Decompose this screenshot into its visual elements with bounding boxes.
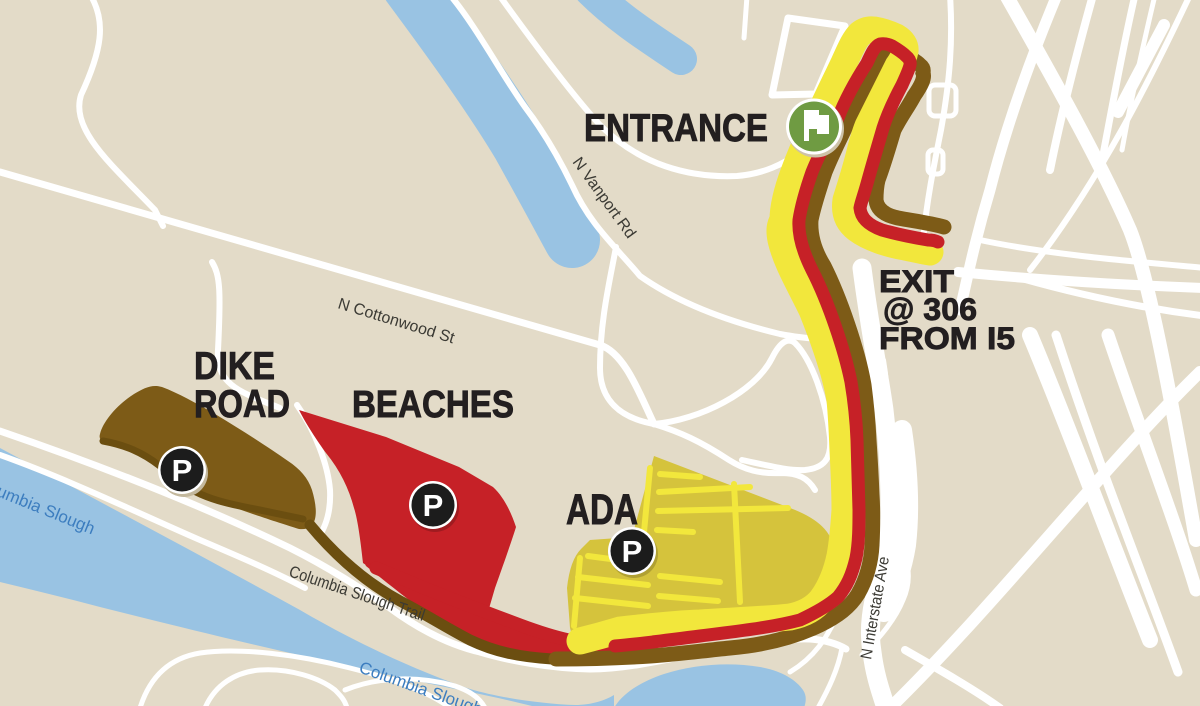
svg-text:P: P — [172, 453, 193, 488]
svg-text:P: P — [622, 534, 643, 569]
svg-text:ROAD: ROAD — [194, 383, 290, 426]
svg-text:P: P — [423, 488, 444, 523]
svg-text:ADA: ADA — [566, 486, 638, 534]
svg-text:FROM I5: FROM I5 — [879, 320, 1015, 356]
svg-text:BEACHES: BEACHES — [352, 384, 514, 426]
svg-text:ENTRANCE: ENTRANCE — [584, 107, 768, 150]
svg-text:DIKE: DIKE — [194, 345, 275, 388]
